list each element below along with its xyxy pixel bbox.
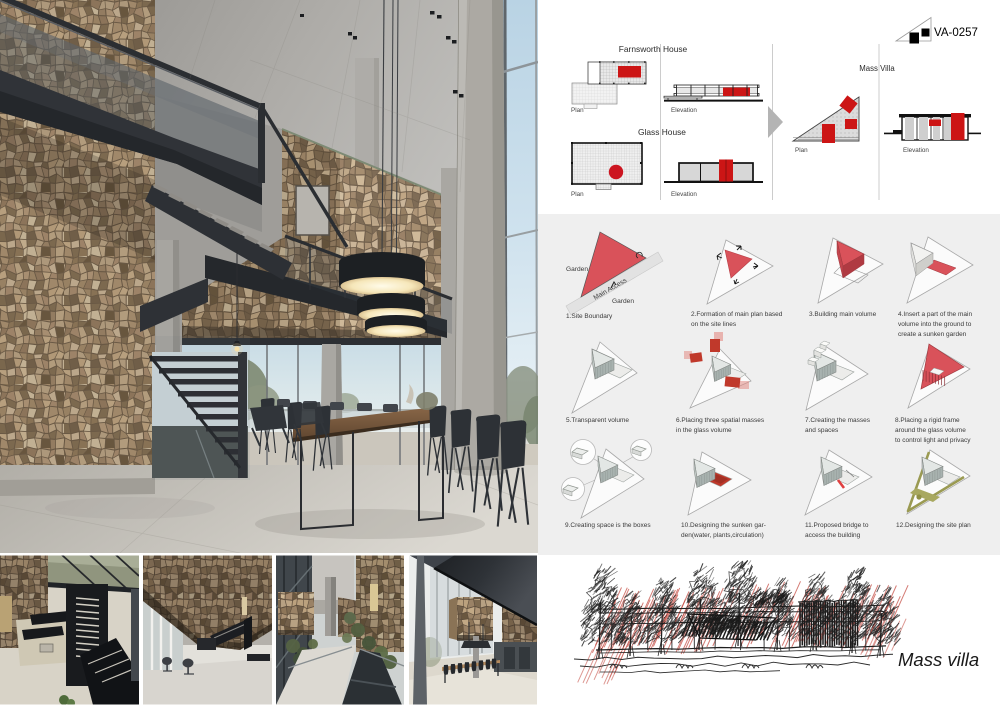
svg-text:to control light and privacy: to control light and privacy xyxy=(895,437,971,444)
svg-text:10.Designing the sunken gar-: 10.Designing the sunken gar- xyxy=(681,522,766,529)
svg-text:Plan: Plan xyxy=(795,147,808,154)
svg-text:4.Insert a part of the main: 4.Insert a part of the main xyxy=(898,311,972,318)
svg-text:and spaces: and spaces xyxy=(805,427,839,434)
svg-text:6.Placing three spatial masses: 6.Placing three spatial masses xyxy=(676,417,765,424)
svg-text:in the glass volume: in the glass volume xyxy=(676,427,732,434)
svg-text:on the site lines: on the site lines xyxy=(691,321,737,328)
svg-text:9.Creating space is the boxes: 9.Creating space is the boxes xyxy=(565,522,651,529)
svg-text:12.Designing the site plan: 12.Designing the site plan xyxy=(896,522,971,529)
svg-text:2.Formation of main plan based: 2.Formation of main plan based xyxy=(691,311,783,318)
svg-text:Elevation: Elevation xyxy=(671,191,697,198)
svg-text:access the building: access the building xyxy=(805,532,861,539)
svg-text:1.Site Boundary: 1.Site Boundary xyxy=(566,313,613,320)
svg-text:VA-0257: VA-0257 xyxy=(934,27,978,39)
svg-text:5.Transparent volume: 5.Transparent volume xyxy=(566,417,629,424)
svg-text:around the glass volume: around the glass volume xyxy=(895,427,966,434)
svg-text:11.Proposed bridge to: 11.Proposed bridge to xyxy=(805,522,869,529)
svg-text:Plan: Plan xyxy=(571,191,584,198)
svg-text:Plan: Plan xyxy=(571,107,584,114)
svg-text:Farnsworth House: Farnsworth House xyxy=(619,44,688,54)
svg-text:3.Building main volume: 3.Building main volume xyxy=(809,311,877,318)
svg-text:7.Creating the masses: 7.Creating the masses xyxy=(805,417,871,424)
svg-text:Elevation: Elevation xyxy=(671,107,697,114)
svg-text:Mass Villa: Mass Villa xyxy=(859,64,895,73)
svg-text:Mass villa: Mass villa xyxy=(898,649,979,670)
svg-text:den(water, plants,circulation): den(water, plants,circulation) xyxy=(681,532,764,539)
svg-text:volume into the ground to: volume into the ground to xyxy=(898,321,972,328)
svg-text:Garden: Garden xyxy=(612,298,634,305)
svg-text:8.Placing a rigid frame: 8.Placing a rigid frame xyxy=(895,417,960,424)
svg-text:Garden: Garden xyxy=(566,266,588,273)
svg-text:Glass House: Glass House xyxy=(638,127,686,137)
svg-text:create a sunken garden: create a sunken garden xyxy=(898,331,967,338)
svg-text:Elevation: Elevation xyxy=(903,147,929,154)
